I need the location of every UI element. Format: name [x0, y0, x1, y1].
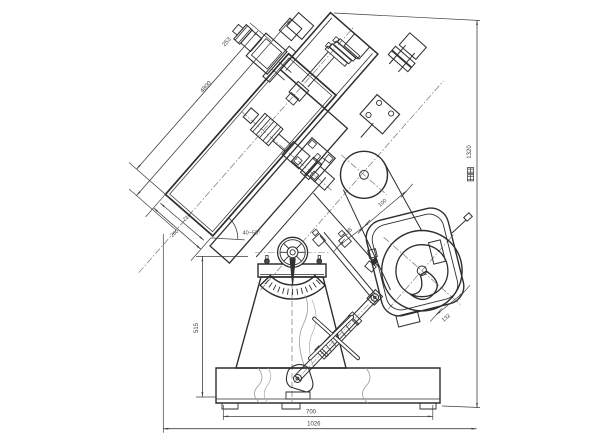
svg-text:132: 132 — [441, 313, 452, 324]
svg-text:700: 700 — [306, 410, 317, 416]
svg-text:253: 253 — [222, 36, 234, 48]
svg-text:210: 210 — [182, 213, 193, 223]
svg-text:4800: 4800 — [200, 80, 214, 94]
svg-text:100: 100 — [377, 198, 388, 209]
svg-text:1320: 1320 — [467, 145, 473, 159]
svg-text:515: 515 — [194, 322, 200, 333]
svg-text:1026: 1026 — [307, 422, 321, 428]
svg-text:40~55°: 40~55° — [243, 231, 261, 237]
